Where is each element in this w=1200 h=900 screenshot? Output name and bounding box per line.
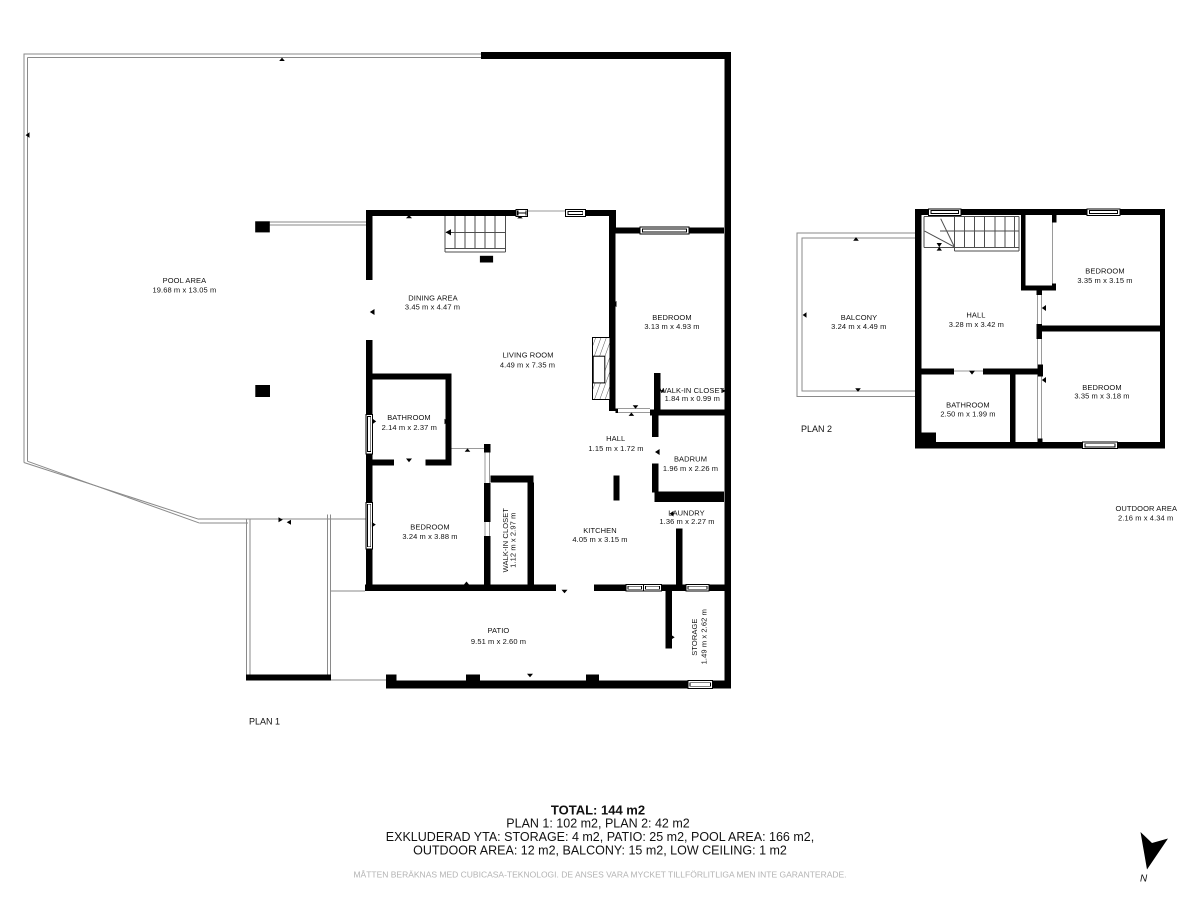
svg-text:19.68 m x 13.05 m: 19.68 m x 13.05 m xyxy=(152,286,216,295)
svg-text:3.24 m x 4.49 m: 3.24 m x 4.49 m xyxy=(831,322,886,331)
svg-text:KITCHEN: KITCHEN xyxy=(583,526,617,535)
svg-text:DINING AREA: DINING AREA xyxy=(408,293,457,302)
svg-text:3.28 m x 3.42 m: 3.28 m x 3.42 m xyxy=(949,320,1004,329)
svg-text:1.12 m x 2.97 m: 1.12 m x 2.97 m xyxy=(509,513,518,568)
svg-text:PLAN 1: PLAN 1 xyxy=(249,717,280,727)
svg-text:3.45 m x 4.47 m: 3.45 m x 4.47 m xyxy=(405,303,460,312)
svg-text:EXKLUDERAD YTA: STORAGE: 4 m2,: EXKLUDERAD YTA: STORAGE: 4 m2, PATIO: 25… xyxy=(386,830,814,844)
svg-text:1.36 m x 2.27 m: 1.36 m x 2.27 m xyxy=(659,517,714,526)
svg-text:HALL: HALL xyxy=(966,311,985,320)
svg-text:STORAGE: STORAGE xyxy=(690,618,699,655)
svg-text:BEDROOM: BEDROOM xyxy=(652,313,691,322)
svg-text:PLAN 1: 102 m2, PLAN 2: 42 m2: PLAN 1: 102 m2, PLAN 2: 42 m2 xyxy=(506,817,689,831)
svg-text:1.96 m x 2.26 m: 1.96 m x 2.26 m xyxy=(663,464,718,473)
svg-text:3.35 m x 3.15 m: 3.35 m x 3.15 m xyxy=(1077,276,1132,285)
svg-text:2.14 m x 2.37 m: 2.14 m x 2.37 m xyxy=(382,423,437,432)
svg-text:OUTDOOR AREA: 12 m2, BALCONY:: OUTDOOR AREA: 12 m2, BALCONY: 15 m2, LOW… xyxy=(413,844,787,858)
svg-text:N: N xyxy=(1140,874,1148,885)
svg-text:PATIO: PATIO xyxy=(487,626,509,635)
svg-text:BEDROOM: BEDROOM xyxy=(1085,267,1124,276)
svg-text:BALCONY: BALCONY xyxy=(841,313,878,322)
svg-text:3.35 m x 3.18 m: 3.35 m x 3.18 m xyxy=(1074,392,1129,401)
svg-text:4.05 m x 3.15 m: 4.05 m x 3.15 m xyxy=(572,535,627,544)
svg-text:BEDROOM: BEDROOM xyxy=(1082,383,1121,392)
svg-text:POOL AREA: POOL AREA xyxy=(163,276,207,285)
svg-text:3.13 m x 4.93 m: 3.13 m x 4.93 m xyxy=(644,322,699,331)
svg-text:TOTAL: 144 m2: TOTAL: 144 m2 xyxy=(551,803,645,818)
svg-text:4.49 m x 7.35 m: 4.49 m x 7.35 m xyxy=(500,360,555,369)
svg-text:LIVING ROOM: LIVING ROOM xyxy=(502,350,553,359)
svg-text:1.49 m x 2.62 m: 1.49 m x 2.62 m xyxy=(699,609,708,664)
svg-text:1.84 m x 0.99 m: 1.84 m x 0.99 m xyxy=(665,394,720,403)
svg-text:MÅTTEN BERÄKNAS MED CUBICASA-T: MÅTTEN BERÄKNAS MED CUBICASA-TEKNOLOGI. … xyxy=(353,870,846,880)
svg-text:HALL: HALL xyxy=(606,434,625,443)
svg-text:2.16 m x 4.34 m: 2.16 m x 4.34 m xyxy=(1118,513,1173,522)
svg-text:BADRUM: BADRUM xyxy=(674,455,707,464)
svg-text:2.50 m x 1.99 m: 2.50 m x 1.99 m xyxy=(940,409,995,418)
svg-text:OUTDOOR AREA: OUTDOOR AREA xyxy=(1115,504,1177,513)
svg-text:9.51 m x 2.60 m: 9.51 m x 2.60 m xyxy=(471,637,526,646)
svg-text:BATHROOM: BATHROOM xyxy=(387,413,431,422)
svg-text:3.24 m x 3.88 m: 3.24 m x 3.88 m xyxy=(402,532,457,541)
svg-text:BEDROOM: BEDROOM xyxy=(410,523,449,532)
svg-text:PLAN 2: PLAN 2 xyxy=(801,424,832,434)
svg-text:1.15 m x 1.72 m: 1.15 m x 1.72 m xyxy=(588,444,643,453)
